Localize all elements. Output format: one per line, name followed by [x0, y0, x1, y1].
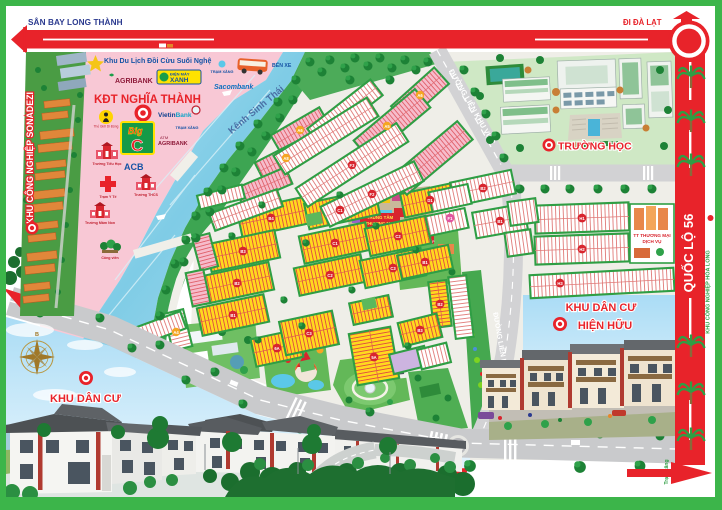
svg-text:B1: B1 [230, 313, 236, 318]
svg-text:TRẠM XĂNG: TRẠM XĂNG [211, 69, 234, 74]
svg-text:DỊCH VỤ: DỊCH VỤ [643, 239, 663, 244]
svg-text:C3: C3 [306, 331, 312, 336]
svg-text:VietinBank: VietinBank [158, 112, 192, 119]
svg-text:ĐI ĐÀ LẠT: ĐI ĐÀ LẠT [623, 18, 662, 27]
svg-text:KHU DÂN CƯ: KHU DÂN CƯ [566, 301, 638, 314]
svg-text:Thế Giới Di Động: Thế Giới Di Động [94, 125, 119, 129]
svg-text:ACB: ACB [124, 162, 144, 172]
svg-text:F1: F1 [448, 216, 454, 221]
svg-text:AGRIBANK: AGRIBANK [158, 141, 188, 147]
svg-text:KĐT NGHĨA THÀNH: KĐT NGHĨA THÀNH [94, 93, 201, 106]
svg-text:D1: D1 [427, 198, 433, 203]
svg-text:HIỆN HỮU: HIỆN HỮU [578, 319, 632, 332]
svg-text:Khu Du Lịch Đồi Cừu Suối Nghệ: Khu Du Lịch Đồi Cừu Suối Nghệ [104, 56, 211, 65]
svg-text:H2: H2 [579, 247, 585, 252]
svg-text:QUỐC LỘ 56: QUỐC LỘ 56 [681, 214, 696, 293]
svg-text:H1: H1 [579, 216, 585, 221]
svg-text:F3: F3 [350, 163, 356, 168]
svg-text:F2: F2 [370, 192, 376, 197]
svg-text:B3: B3 [417, 328, 423, 333]
svg-text:B2: B2 [480, 186, 486, 191]
svg-text:Big: Big [128, 126, 143, 136]
svg-text:TRƯỜNG HỌC: TRƯỜNG HỌC [558, 140, 632, 153]
svg-text:B: B [35, 332, 39, 338]
svg-text:B1: B1 [497, 219, 503, 224]
svg-text:H3: H3 [557, 281, 563, 286]
svg-text:B3: B3 [240, 249, 246, 254]
svg-text:ĐIỆN MÁY: ĐIỆN MÁY [170, 72, 190, 77]
svg-text:B1: B1 [422, 260, 428, 265]
svg-text:A8: A8 [283, 156, 289, 161]
svg-text:Sacombank: Sacombank [214, 84, 254, 91]
svg-text:ATM: ATM [160, 135, 168, 140]
svg-text:C2: C2 [327, 273, 333, 278]
svg-text:TRẠM XĂNG: TRẠM XĂNG [176, 125, 199, 130]
svg-text:Công viên: Công viên [101, 256, 118, 260]
svg-text:B4: B4 [268, 216, 274, 221]
svg-text:C1: C1 [337, 208, 343, 213]
svg-text:XANH: XANH [170, 77, 189, 84]
svg-text:Trường Mầm Non: Trường Mầm Non [85, 221, 115, 225]
svg-text:AGRIBANK: AGRIBANK [115, 78, 153, 85]
svg-text:B2: B2 [437, 302, 443, 307]
svg-text:C2: C2 [395, 234, 401, 239]
svg-text:Trường THCS: Trường THCS [134, 193, 158, 197]
svg-text:Trạm Y Tế: Trạm Y Tế [99, 195, 116, 199]
svg-text:6A: 6A [274, 346, 279, 351]
svg-text:5A: 5A [371, 355, 376, 360]
svg-text:C3: C3 [390, 266, 396, 271]
svg-text:A4: A4 [173, 330, 179, 335]
svg-text:C: C [131, 136, 143, 155]
svg-text:A5: A5 [384, 124, 390, 129]
svg-text:A6: A6 [417, 93, 423, 98]
svg-text:KHU CÔNG NGHIỆP HÒA LONG: KHU CÔNG NGHIỆP HÒA LONG [704, 250, 712, 333]
svg-text:TT THƯƠNG MẠI: TT THƯƠNG MẠI [633, 233, 670, 238]
svg-text:KHU DÂN CƯ: KHU DÂN CƯ [50, 392, 122, 405]
svg-text:BẾN XE: BẾN XE [272, 62, 292, 69]
svg-text:A6: A6 [297, 128, 303, 133]
svg-text:KHU CÔNG NGHIỆP SONADEZI: KHU CÔNG NGHIỆP SONADEZI [24, 92, 35, 224]
svg-text:SÂN BAY LONG THÀNH: SÂN BAY LONG THÀNH [28, 16, 123, 27]
svg-text:B2: B2 [234, 281, 240, 286]
svg-text:C1: C1 [332, 241, 338, 246]
svg-text:Trường Tiểu Học: Trường Tiểu Học [92, 162, 121, 166]
